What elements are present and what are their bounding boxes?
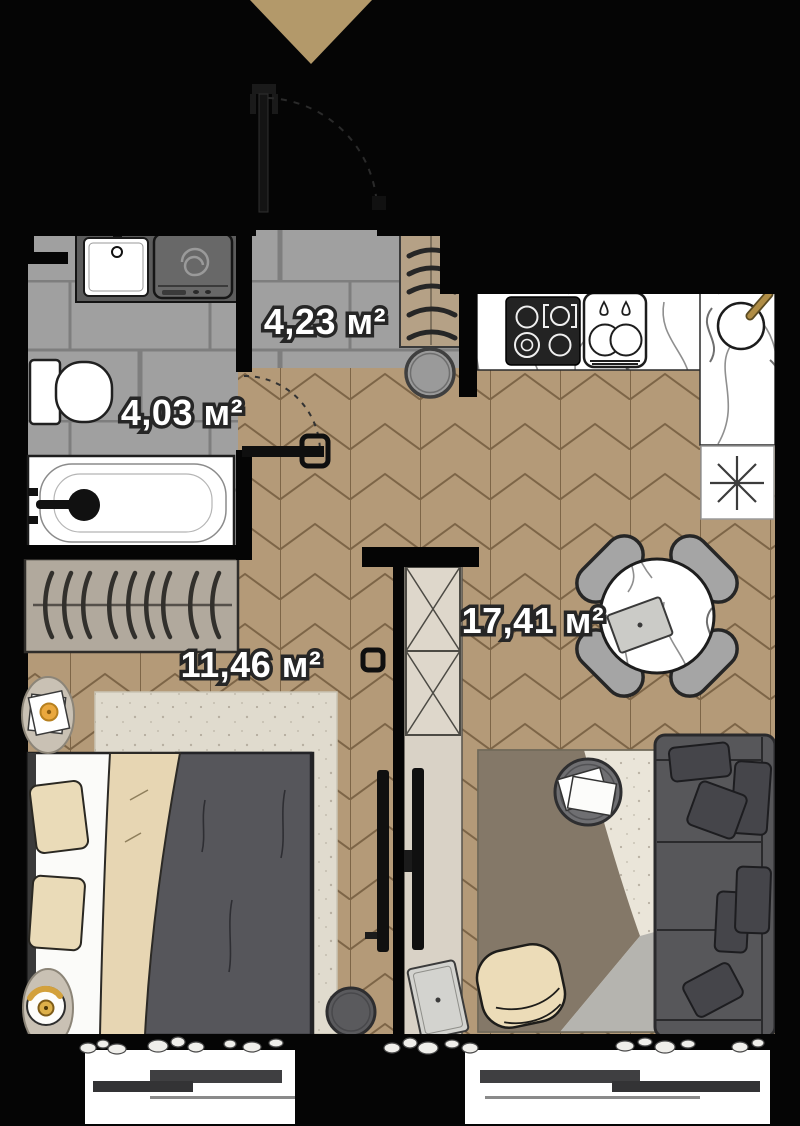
window-living bbox=[465, 1050, 770, 1124]
window-bedroom bbox=[85, 1050, 295, 1124]
bath-faucet-icon bbox=[68, 489, 100, 521]
bed-pillow bbox=[29, 780, 89, 854]
sofa-pillow bbox=[668, 742, 731, 782]
sofa bbox=[655, 735, 775, 1037]
bathtub bbox=[28, 456, 234, 550]
bedroom-closet bbox=[25, 559, 238, 652]
kitchen-living-area-label: 17,41 м² bbox=[462, 600, 605, 641]
floor-plan: 4,23 м² 4,03 м² 17,41 м² 11,46 м² bbox=[0, 0, 800, 1126]
washing-machine bbox=[154, 234, 232, 298]
coffee-table bbox=[555, 759, 621, 825]
bedroom-pouf bbox=[327, 988, 375, 1036]
kitchen-sink bbox=[584, 293, 646, 367]
bed-pillow bbox=[29, 875, 86, 950]
fridge-snowflake-symbol bbox=[701, 446, 774, 519]
hallway-stool bbox=[406, 349, 454, 397]
hallway-area-label: 4,23 м² bbox=[264, 301, 386, 342]
floor-plan-svg: 4,23 м² 4,03 м² 17,41 м² 11,46 м² bbox=[0, 0, 800, 1126]
stove bbox=[506, 297, 580, 365]
sofa-pillow bbox=[735, 866, 771, 933]
bedroom-area-label: 11,46 м² bbox=[181, 644, 322, 685]
nightstand-top bbox=[22, 677, 74, 753]
toilet bbox=[30, 360, 112, 424]
bathroom-area-label: 4,03 м² bbox=[121, 392, 243, 433]
